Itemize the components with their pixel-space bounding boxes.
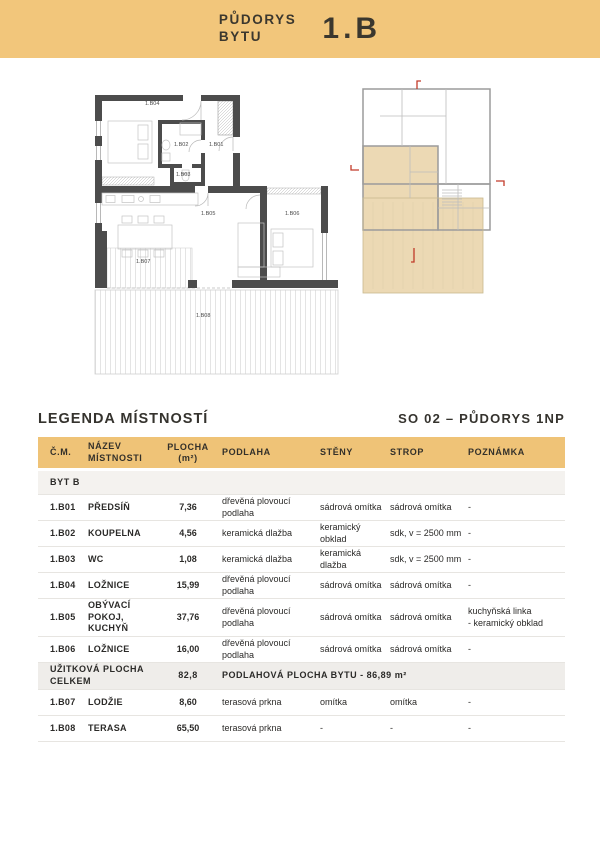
room-floor: keramická dlažba (222, 528, 320, 540)
room-walls: sádrová omítka (320, 502, 390, 514)
col-header-walls: STĚNY (320, 447, 390, 459)
room-label-1b05: 1.B05 (201, 211, 215, 217)
drawing-reference: SO 02 – PŮDORYS 1NP (398, 411, 565, 426)
room-area: 16,00 (160, 644, 222, 656)
loggia-area (107, 248, 192, 288)
room-label-1b04: 1.B04 (145, 101, 159, 107)
room-name: OBÝVACÍ POKOJ, KUCHYŇ (88, 600, 160, 635)
table-row: 1.B08 TERASA 65,50 terasová prkna - - - (38, 716, 565, 742)
room-ceiling: - (390, 723, 468, 735)
table-row: 1.B07 LODŽIE 8,60 terasová prkna omítka … (38, 690, 565, 716)
room-ceiling: sádrová omítka (390, 580, 468, 592)
room-area: 4,56 (160, 528, 222, 540)
room-legend-table: Č.M. NÁZEV MÍSTNOSTI PLOCHA(m²) PODLAHA … (38, 437, 565, 742)
room-id: 1.B04 (50, 580, 88, 592)
room-id: 1.B07 (50, 697, 88, 709)
room-id: 1.B03 (50, 554, 88, 566)
table-row: 1.B01 PŘEDSÍŇ 7,36 dřevěná plovoucí podl… (38, 495, 565, 521)
room-id: 1.B01 (50, 502, 88, 514)
room-walls: omítka (320, 697, 390, 709)
page-title: PŮDORYS BYTU (219, 12, 296, 46)
room-note: - (468, 554, 553, 566)
summary-area: 82,8 (160, 670, 222, 682)
room-name: KOUPELNA (88, 528, 160, 540)
table-row: 1.B03 WC 1,08 keramická dlažba keramická… (38, 547, 565, 573)
room-label-1b02: 1.B02 (174, 142, 188, 148)
room-id: 1.B02 (50, 528, 88, 540)
floor-plan-sheet: PŮDORYS BYTU 1.B (0, 0, 600, 849)
key-plan-drawing (350, 80, 505, 300)
room-label-1b06: 1.B06 (285, 211, 299, 217)
room-ceiling: sádrová omítka (390, 644, 468, 656)
room-floor: keramická dlažba (222, 554, 320, 566)
room-note: - (468, 644, 553, 656)
room-ceiling: sdk, v = 2500 mm (390, 554, 468, 566)
table-row: 1.B05 OBÝVACÍ POKOJ, KUCHYŇ 37,76 dřevěn… (38, 599, 565, 637)
room-walls: sádrová omítka (320, 580, 390, 592)
room-walls: keramická dlažba (320, 548, 390, 571)
room-ceiling: sádrová omítka (390, 502, 468, 514)
room-ceiling: omítka (390, 697, 468, 709)
room-note: - (468, 580, 553, 592)
room-walls: keramický obklad (320, 522, 390, 545)
unit-number: 1.B (322, 12, 381, 46)
room-area: 8,60 (160, 697, 222, 709)
room-label-1b03: 1.B03 (176, 172, 190, 178)
room-walls: - (320, 723, 390, 735)
room-name: LODŽIE (88, 697, 160, 709)
shaft (218, 101, 233, 135)
col-header-area-line1: PLOCHA (167, 442, 209, 452)
terrace-area (95, 290, 338, 374)
room-ceiling: sdk, v = 2500 mm (390, 528, 468, 540)
section-row: BYT B (38, 471, 565, 495)
table-row: 1.B04 LOŽNICE 15,99 dřevěná plovoucí pod… (38, 573, 565, 599)
room-area: 1,08 (160, 554, 222, 566)
col-header-note: POZNÁMKA (468, 447, 553, 459)
col-header-cm: Č.M. (50, 447, 88, 459)
room-note: - (468, 723, 553, 735)
room-area: 65,50 (160, 723, 222, 735)
summary-row: UŽITKOVÁ PLOCHA CELKEM 82,8 PODLAHOVÁ PL… (38, 663, 565, 690)
col-header-area-line2: (m²) (178, 453, 197, 463)
summary-label: UŽITKOVÁ PLOCHA CELKEM (50, 664, 160, 687)
room-name: TERASA (88, 723, 160, 735)
apartment-floor-plan-drawing: 1.B04 1.B02 1.B01 1.B03 1.B05 1.B06 1.B0… (88, 83, 346, 383)
room-floor: dřevěná plovoucí podlaha (222, 606, 320, 629)
room-id: 1.B06 (50, 644, 88, 656)
room-floor: dřevěná plovoucí podlaha (222, 574, 320, 597)
room-ceiling: sádrová omítka (390, 612, 468, 624)
legend-title: LEGENDA MÍSTNOSTÍ (38, 411, 208, 427)
room-id: 1.B08 (50, 723, 88, 735)
room-name: LOŽNICE (88, 644, 160, 656)
room-name: WC (88, 554, 160, 566)
room-note: - (468, 697, 553, 709)
room-floor: terasová prkna (222, 697, 320, 709)
header-band: PŮDORYS BYTU 1.B (0, 0, 600, 58)
room-note: - (468, 502, 553, 514)
room-floor: dřevěná plovoucí podlaha (222, 638, 320, 661)
room-area: 15,99 (160, 580, 222, 592)
room-area: 7,36 (160, 502, 222, 514)
table-row: 1.B02 KOUPELNA 4,56 keramická dlažba ker… (38, 521, 565, 547)
table-header-row: Č.M. NÁZEV MÍSTNOSTI PLOCHA(m²) PODLAHA … (38, 437, 565, 468)
section-label: BYT B (50, 477, 553, 489)
room-label-1b07: 1.B07 (136, 259, 150, 265)
col-header-name: NÁZEV MÍSTNOSTI (88, 441, 160, 464)
room-id: 1.B05 (50, 612, 88, 624)
apartment-floor-plan: 1.B04 1.B02 1.B01 1.B03 1.B05 1.B06 1.B0… (88, 83, 346, 383)
legend-heading: LEGENDA MÍSTNOSTÍ SO 02 – PŮDORYS 1NP (38, 411, 565, 427)
table-row: 1.B06 LOŽNICE 16,00 dřevěná plovoucí pod… (38, 637, 565, 663)
room-name: PŘEDSÍŇ (88, 502, 160, 514)
summary-note: PODLAHOVÁ PLOCHA BYTU - 86,89 m² (222, 670, 553, 682)
col-header-floor: PODLAHA (222, 447, 320, 459)
col-header-ceiling: STROP (390, 447, 468, 459)
room-label-1b01: 1.B01 (209, 142, 223, 148)
room-label-1b08: 1.B08 (196, 313, 210, 319)
room-walls: sádrová omítka (320, 644, 390, 656)
room-name: LOŽNICE (88, 580, 160, 592)
room-floor: dřevěná plovoucí podlaha (222, 496, 320, 519)
room-note: kuchyňská linka - keramický obklad (468, 606, 553, 629)
room-walls: sádrová omítka (320, 612, 390, 624)
room-area: 37,76 (160, 612, 222, 624)
col-header-area: PLOCHA(m²) (160, 442, 222, 463)
key-plan (350, 80, 505, 300)
room-note: - (468, 528, 553, 540)
room-floor: terasová prkna (222, 723, 320, 735)
